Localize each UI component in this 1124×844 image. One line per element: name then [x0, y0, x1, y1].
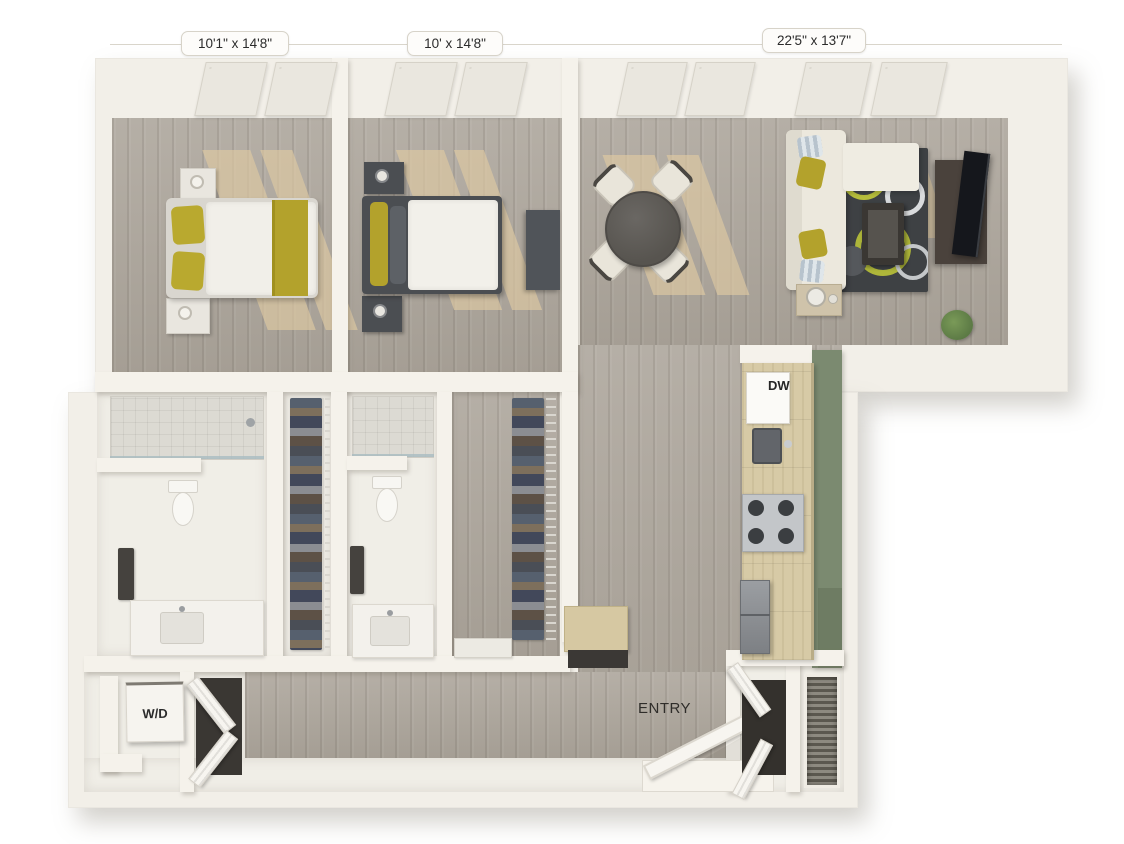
bathroom-2-toilet-bowl	[376, 488, 398, 522]
bathroom-1-toilet-bowl	[172, 492, 194, 526]
living-room-window-a1	[616, 62, 687, 116]
walk-in-closet-base-cabinet	[454, 638, 512, 658]
utility-closet-hvac	[804, 674, 840, 788]
floor-plan-canvas: 10'1" x 14'8" 10' x 14'8" 22'5" x 13'7"	[0, 0, 1124, 844]
kitchen-sink	[752, 428, 782, 464]
bedroom-1-pillow-b	[171, 251, 206, 291]
window-pane	[209, 67, 211, 69]
bedroom-1-throw-blanket	[272, 200, 308, 296]
bedroom-2-lamp-top	[375, 169, 389, 183]
bathroom-2-sink	[370, 616, 410, 646]
wall-bath-block-south	[84, 656, 570, 672]
dimension-label-bedroom-1: 10'1" x 14'8"	[181, 31, 289, 56]
window-pane	[469, 67, 471, 69]
stove-burner-2	[778, 500, 794, 516]
bathroom-2-half-wall	[347, 456, 407, 470]
wall-laundry-niche-bottom	[100, 754, 142, 772]
refrigerator	[740, 580, 770, 654]
entry-bench-top	[564, 606, 628, 652]
bathroom-1-faucet	[179, 606, 185, 612]
wall-bedrooms-south	[95, 372, 578, 392]
bathroom-2-towel	[350, 546, 364, 594]
washer-dryer-label-text: W/D	[142, 705, 168, 720]
window-pane	[809, 67, 811, 69]
closet-1-wire-shelf	[325, 398, 330, 650]
wall-bedroom1-bedroom2	[332, 58, 348, 392]
wall-bath2-walkin	[437, 392, 452, 656]
closet-1-hanging-clothes	[290, 398, 322, 650]
bathroom-1-half-wall	[97, 458, 201, 472]
entry-label-text: ENTRY	[638, 700, 691, 717]
bedroom-2-pillow-gray	[390, 206, 406, 284]
side-table-decor	[828, 294, 838, 304]
wall-entry-closet-divider	[786, 660, 800, 792]
sofa-pillow-blue-top	[797, 134, 824, 159]
window-pane	[399, 67, 401, 69]
side-table-glass-lamp	[806, 287, 826, 307]
wall-kitchen-north	[740, 345, 812, 363]
coffee-table-glass	[868, 210, 898, 258]
bedroom-2-dresser	[526, 210, 560, 290]
bedroom-2-window-left	[384, 62, 457, 116]
dishwasher-label-text: DW	[768, 378, 790, 393]
window-pane	[279, 67, 281, 69]
living-room-window-a2	[684, 62, 755, 116]
bathroom-1-shower	[110, 396, 264, 460]
walk-in-closet-hanging-clothes	[512, 398, 544, 640]
dimension-label-living-room: 22'5" x 13'7"	[762, 28, 866, 53]
sofa-pillow-blue-bottom	[799, 259, 825, 283]
dimension-text-living-room: 22'5" x 13'7"	[777, 33, 851, 48]
entry-bench-shoe-shelf	[568, 650, 628, 668]
bedroom-1-pillow-a	[171, 205, 206, 245]
bedroom-2-lamp-bottom	[373, 304, 387, 318]
living-room-plant	[941, 310, 973, 340]
living-room-window-b1	[794, 62, 871, 116]
living-room-window-b2	[870, 62, 947, 116]
stove-burner-3	[748, 528, 764, 544]
bathroom-1-towel	[118, 548, 134, 600]
dimension-text-bedroom-1: 10'1" x 14'8"	[198, 36, 272, 51]
wall-bath1-closet1	[267, 392, 283, 656]
bedroom-1-lamp-bottom	[178, 306, 192, 320]
window-pane	[699, 67, 701, 69]
bathroom-1-shower-head	[246, 418, 255, 427]
bedroom-2-duvet	[408, 200, 498, 290]
stove-burner-4	[778, 528, 794, 544]
dimension-text-bedroom-2: 10' x 14'8"	[424, 36, 486, 51]
wall-bedroom2-living	[562, 58, 578, 392]
dimension-label-bedroom-2: 10' x 14'8"	[407, 31, 503, 56]
stove-burner-1	[748, 500, 764, 516]
bathroom-2-faucet	[387, 610, 393, 616]
bedroom-1-window-left	[194, 62, 267, 116]
bedroom-2-pillow-yellow	[370, 202, 388, 286]
bedroom-1-window-right	[264, 62, 337, 116]
bathroom-1-sink	[160, 612, 204, 644]
closet-1-rod	[322, 398, 324, 650]
kitchen-faucet	[784, 440, 792, 448]
bathroom-2-shower	[352, 396, 434, 458]
bedroom-2-window-right	[454, 62, 527, 116]
sofa-chaise	[843, 143, 919, 191]
sofa-pillow-yellow-bottom	[798, 228, 828, 260]
washer-dryer-unit: W/D	[125, 681, 184, 742]
walk-in-closet-wire-shelf	[546, 398, 556, 640]
bedroom-1-lamp-top	[190, 175, 204, 189]
wall-closet-hallway	[562, 392, 578, 642]
refrigerator-door-split	[740, 614, 770, 616]
window-pane	[885, 67, 887, 69]
dining-table	[605, 191, 681, 267]
wall-closet1-bath2	[331, 392, 347, 656]
window-pane	[631, 67, 633, 69]
